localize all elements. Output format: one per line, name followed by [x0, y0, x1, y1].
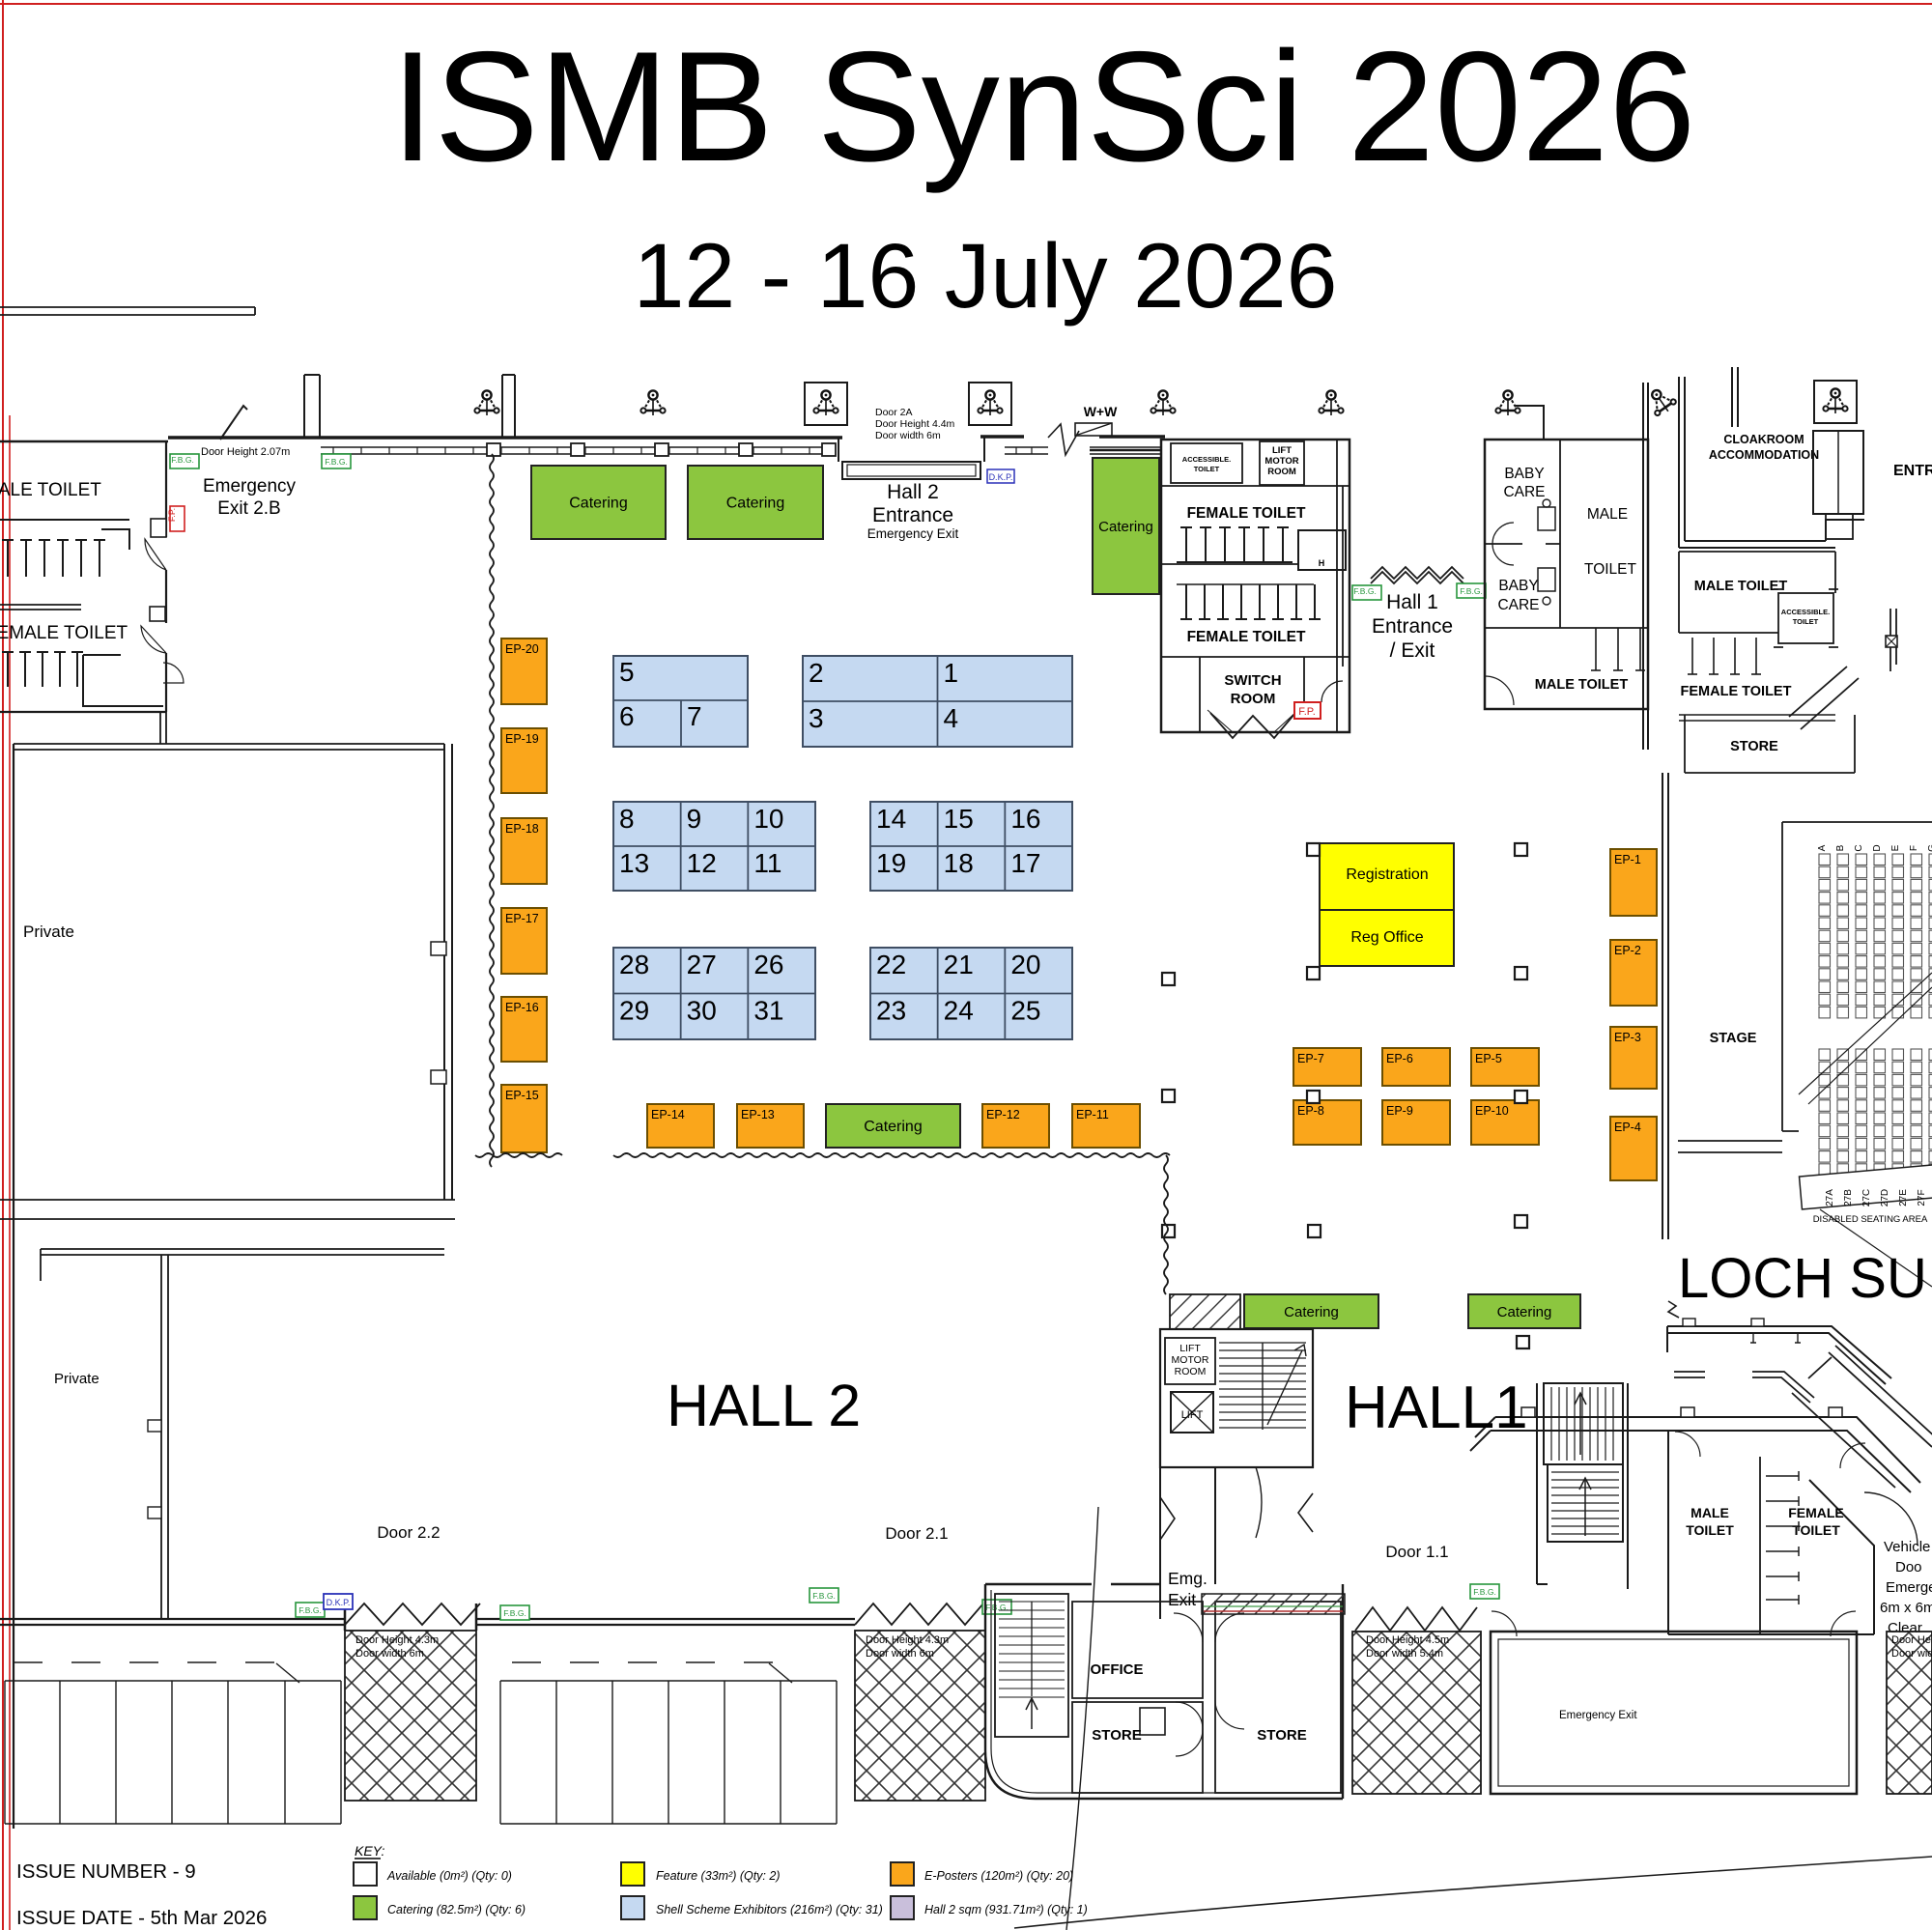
svg-text:16: 16: [1010, 804, 1040, 834]
svg-text:4: 4: [944, 703, 959, 733]
svg-text:14: 14: [876, 804, 906, 834]
svg-text:6m x 6m ke: 6m x 6m ke: [1880, 1600, 1932, 1616]
svg-text:31: 31: [753, 996, 783, 1026]
svg-text:Doo: Doo: [1895, 1559, 1922, 1575]
svg-text:HALL 2: HALL 2: [667, 1373, 861, 1438]
svg-text:FEMALE: FEMALE: [1788, 1505, 1844, 1520]
svg-text:Entrance: Entrance: [872, 504, 953, 526]
svg-text:MOTOR: MOTOR: [1172, 1354, 1209, 1366]
svg-text:F.B.G.: F.B.G.: [1460, 586, 1483, 596]
svg-text:MALE TOILET: MALE TOILET: [1694, 579, 1788, 594]
svg-text:ACCESSIBLE.: ACCESSIBLE.: [1781, 608, 1830, 616]
svg-text:Door Height 4.3m: Door Height 4.3m: [866, 1634, 949, 1646]
svg-text:5: 5: [619, 657, 635, 687]
svg-text:Registration: Registration: [1346, 866, 1428, 883]
svg-text:Door width 6m: Door width 6m: [355, 1648, 424, 1660]
svg-text:CARE: CARE: [1497, 597, 1539, 613]
svg-text:Door width 6m: Door width 6m: [875, 430, 941, 441]
svg-text:13: 13: [619, 848, 649, 878]
svg-text:Emg.: Emg.: [1168, 1569, 1207, 1588]
svg-text:27F: 27F: [1917, 1189, 1927, 1206]
svg-text:DISABLED SEATING AREA: DISABLED SEATING AREA: [1813, 1214, 1928, 1225]
svg-text:F.B.G.: F.B.G.: [171, 455, 194, 465]
svg-text:F.B.G.: F.B.G.: [812, 1591, 836, 1601]
svg-text:EP-7: EP-7: [1297, 1052, 1324, 1065]
svg-text:28: 28: [619, 950, 649, 979]
svg-text:Emergency Exit: Emergency Exit: [867, 526, 959, 541]
svg-text:EP-18: EP-18: [505, 822, 539, 836]
svg-text:EP-9: EP-9: [1386, 1104, 1413, 1118]
svg-text:F.P.: F.P.: [1298, 706, 1316, 718]
svg-text:EP-10: EP-10: [1475, 1104, 1509, 1118]
svg-text:Door 1.1: Door 1.1: [1385, 1543, 1448, 1561]
svg-text:HALL1: HALL1: [1345, 1375, 1528, 1441]
svg-text:Private: Private: [23, 922, 74, 941]
svg-text:9: 9: [687, 804, 702, 834]
svg-text:Door width 5.4m: Door width 5.4m: [1366, 1648, 1443, 1660]
svg-text:27A: 27A: [1825, 1189, 1835, 1206]
svg-text:MOTOR: MOTOR: [1264, 456, 1298, 467]
svg-text:27C: 27C: [1861, 1189, 1872, 1206]
svg-text:F.B.G.: F.B.G.: [1353, 586, 1377, 596]
svg-text:B: B: [1835, 844, 1846, 851]
svg-text:1: 1: [944, 658, 959, 688]
svg-text:LIFT: LIFT: [1179, 1343, 1201, 1354]
svg-text:27D: 27D: [1880, 1189, 1890, 1206]
svg-text:Door Height 4.5m: Door Height 4.5m: [1366, 1634, 1449, 1646]
svg-text:ISMB SynSci 2026: ISMB SynSci 2026: [391, 19, 1696, 194]
svg-text:D: D: [1872, 844, 1883, 851]
svg-text:EP-17: EP-17: [505, 912, 539, 925]
svg-text:30: 30: [687, 996, 717, 1026]
svg-text:/ Exit: / Exit: [1390, 639, 1435, 662]
svg-text:Catering: Catering: [1284, 1304, 1339, 1320]
svg-text:G: G: [1927, 844, 1932, 852]
svg-text:EP-5: EP-5: [1475, 1052, 1502, 1065]
svg-text:27E: 27E: [1898, 1189, 1909, 1206]
svg-text:EP-16: EP-16: [505, 1001, 539, 1014]
svg-text:C: C: [1854, 844, 1864, 851]
svg-text:Exit 2.B: Exit 2.B: [217, 498, 280, 519]
svg-text:7: 7: [687, 701, 702, 731]
svg-text:Private: Private: [54, 1371, 99, 1387]
svg-text:ACCOMMODATION: ACCOMMODATION: [1709, 448, 1819, 462]
svg-text:EP-12: EP-12: [986, 1108, 1020, 1121]
svg-text:FEMALE TOILET: FEMALE TOILET: [1187, 505, 1306, 522]
svg-text:Feature (33m²) (Qty: 2): Feature (33m²) (Qty: 2): [656, 1869, 781, 1883]
svg-text:EP-4: EP-4: [1614, 1121, 1641, 1134]
svg-text:6: 6: [619, 701, 635, 731]
svg-text:Door width 6m: Door width 6m: [866, 1648, 934, 1660]
svg-text:EP-11: EP-11: [1076, 1108, 1109, 1121]
svg-text:17: 17: [1010, 848, 1040, 878]
svg-text:ISSUE NUMBER - 9: ISSUE NUMBER - 9: [16, 1860, 196, 1883]
svg-text:E: E: [1890, 844, 1901, 851]
svg-text:ENTRANCE: ENTRANCE: [1893, 463, 1932, 479]
svg-text:A: A: [1817, 844, 1828, 851]
svg-text:11: 11: [753, 848, 781, 878]
svg-text:FEMALE TOILET: FEMALE TOILET: [0, 623, 128, 643]
svg-text:10: 10: [753, 804, 783, 834]
svg-text:Exit: Exit: [1168, 1590, 1196, 1609]
svg-text:12 - 16 July 2026: 12 - 16 July 2026: [634, 225, 1338, 327]
svg-text:ROOM: ROOM: [1267, 467, 1296, 477]
svg-text:Reg Office: Reg Office: [1350, 929, 1423, 946]
svg-text:Catering: Catering: [726, 496, 784, 512]
svg-text:F.B.G.: F.B.G.: [298, 1605, 322, 1615]
svg-text:22: 22: [876, 950, 906, 979]
svg-text:W+W: W+W: [1084, 404, 1118, 419]
svg-text:ROOM: ROOM: [1231, 691, 1276, 707]
svg-text:F.B.G.: F.B.G.: [503, 1608, 526, 1618]
svg-text:15: 15: [944, 804, 974, 834]
svg-text:Hall 1: Hall 1: [1386, 591, 1438, 613]
svg-text:F.B.G.: F.B.G.: [325, 457, 348, 467]
svg-text:MALE TOILET: MALE TOILET: [1535, 677, 1629, 693]
svg-text:OFFICE: OFFICE: [1091, 1661, 1144, 1678]
svg-text:BABY: BABY: [1498, 578, 1538, 594]
svg-text:Available (0m²) (Qty: 0): Available (0m²) (Qty: 0): [386, 1869, 512, 1883]
svg-text:20: 20: [1010, 950, 1040, 979]
svg-text:LOCH SUITE: LOCH SUITE: [1678, 1247, 1932, 1310]
svg-text:CLOAKROOM: CLOAKROOM: [1723, 433, 1804, 446]
svg-text:Emergen: Emergen: [1886, 1579, 1932, 1596]
svg-text:Door 2.1: Door 2.1: [885, 1524, 948, 1543]
svg-text:Door 2A: Door 2A: [875, 407, 913, 418]
svg-text:Catering (82.5m²) (Qty: 6): Catering (82.5m²) (Qty: 6): [387, 1903, 526, 1916]
svg-text:Door 2.2: Door 2.2: [377, 1523, 440, 1542]
svg-text:3: 3: [809, 703, 824, 733]
svg-text:EP-3: EP-3: [1614, 1031, 1641, 1044]
svg-text:Door Height 2.07m: Door Height 2.07m: [201, 446, 290, 458]
svg-text:25: 25: [1010, 996, 1040, 1026]
svg-text:26: 26: [753, 950, 783, 979]
svg-text:STORE: STORE: [1092, 1727, 1141, 1744]
svg-text:Door Height 4.3m: Door Height 4.3m: [355, 1634, 439, 1646]
svg-text:Door Heig: Door Heig: [1891, 1634, 1932, 1646]
svg-text:8: 8: [619, 804, 635, 834]
svg-text:18: 18: [944, 848, 974, 878]
svg-text:EP-13: EP-13: [741, 1108, 775, 1121]
svg-text:21: 21: [944, 950, 974, 979]
svg-text:Hall 2: Hall 2: [887, 481, 939, 503]
svg-text:KEY:: KEY:: [355, 1843, 384, 1859]
svg-text:Catering: Catering: [569, 496, 627, 512]
svg-text:BABY: BABY: [1504, 466, 1544, 482]
svg-text:27B: 27B: [1843, 1189, 1854, 1206]
svg-text:FEMALE TOILET: FEMALE TOILET: [1187, 629, 1306, 645]
svg-text:EP-8: EP-8: [1297, 1104, 1324, 1118]
svg-text:EP-15: EP-15: [505, 1089, 539, 1102]
svg-text:LIFT: LIFT: [1181, 1409, 1204, 1421]
svg-text:MALE TOILET: MALE TOILET: [0, 480, 101, 500]
svg-text:ROOM: ROOM: [1175, 1366, 1207, 1377]
svg-text:Catering: Catering: [864, 1119, 922, 1135]
svg-text:ACCESSIBLE.: ACCESSIBLE.: [1182, 455, 1231, 464]
svg-text:12: 12: [687, 848, 717, 878]
svg-text:19: 19: [876, 848, 906, 878]
svg-text:Door width: Door width: [1891, 1648, 1932, 1660]
svg-text:Door Height 4.4m: Door Height 4.4m: [875, 418, 955, 430]
svg-text:CARE: CARE: [1503, 484, 1545, 500]
svg-text:2: 2: [809, 658, 824, 688]
svg-text:TOILET: TOILET: [1194, 465, 1220, 473]
svg-text:24: 24: [944, 996, 974, 1026]
svg-text:D.K.P.: D.K.P.: [989, 472, 1013, 482]
svg-text:EP-19: EP-19: [505, 732, 539, 746]
svg-text:23: 23: [876, 996, 906, 1026]
svg-text:FEMALE TOILET: FEMALE TOILET: [1681, 684, 1792, 699]
svg-text:STORE: STORE: [1730, 739, 1778, 754]
svg-text:27: 27: [687, 950, 717, 979]
svg-text:STORE: STORE: [1257, 1727, 1306, 1744]
svg-text:EP-20: EP-20: [505, 642, 539, 656]
svg-text:F.B.G.: F.B.G.: [1473, 1587, 1496, 1597]
svg-text:MALE: MALE: [1690, 1505, 1729, 1520]
svg-text:Entrance: Entrance: [1372, 615, 1453, 638]
svg-text:Hall 2 sqm (931.71m²) (Qty: 1): Hall 2 sqm (931.71m²) (Qty: 1): [924, 1903, 1088, 1916]
svg-text:Catering: Catering: [1497, 1304, 1552, 1320]
svg-text:TOILET: TOILET: [1793, 617, 1819, 626]
svg-text:TOILET: TOILET: [1686, 1522, 1734, 1538]
svg-text:STAGE: STAGE: [1710, 1031, 1757, 1046]
svg-text:E-Posters (120m²) (Qty: 20): E-Posters (120m²) (Qty: 20): [924, 1869, 1073, 1883]
svg-text:MALE: MALE: [1587, 506, 1628, 523]
svg-text:H: H: [1319, 558, 1325, 568]
svg-text:LIFT: LIFT: [1272, 445, 1292, 456]
svg-text:EP-1: EP-1: [1614, 853, 1641, 866]
svg-text:D.K.P.: D.K.P.: [327, 1598, 351, 1607]
svg-text:F: F: [1909, 845, 1919, 851]
svg-text:SWITCH: SWITCH: [1224, 672, 1281, 689]
svg-text:TOILET: TOILET: [1584, 561, 1637, 578]
svg-text:EP-14: EP-14: [651, 1108, 685, 1121]
svg-text:Shell Scheme Exhibitors (216m²: Shell Scheme Exhibitors (216m²) (Qty: 31…: [656, 1903, 883, 1916]
svg-text:EP-2: EP-2: [1614, 944, 1641, 957]
svg-text:Vehicle Ac: Vehicle Ac: [1884, 1539, 1932, 1555]
svg-text:F.P.: F.P.: [167, 508, 177, 522]
svg-text:EP-6: EP-6: [1386, 1052, 1413, 1065]
svg-text:Emergency Exit: Emergency Exit: [1559, 1710, 1637, 1721]
svg-text:Emergency: Emergency: [203, 476, 297, 497]
svg-text:ISSUE DATE - 5th Mar 2026: ISSUE DATE - 5th Mar 2026: [16, 1907, 267, 1929]
svg-text:29: 29: [619, 996, 649, 1026]
svg-text:Catering: Catering: [1098, 519, 1153, 535]
